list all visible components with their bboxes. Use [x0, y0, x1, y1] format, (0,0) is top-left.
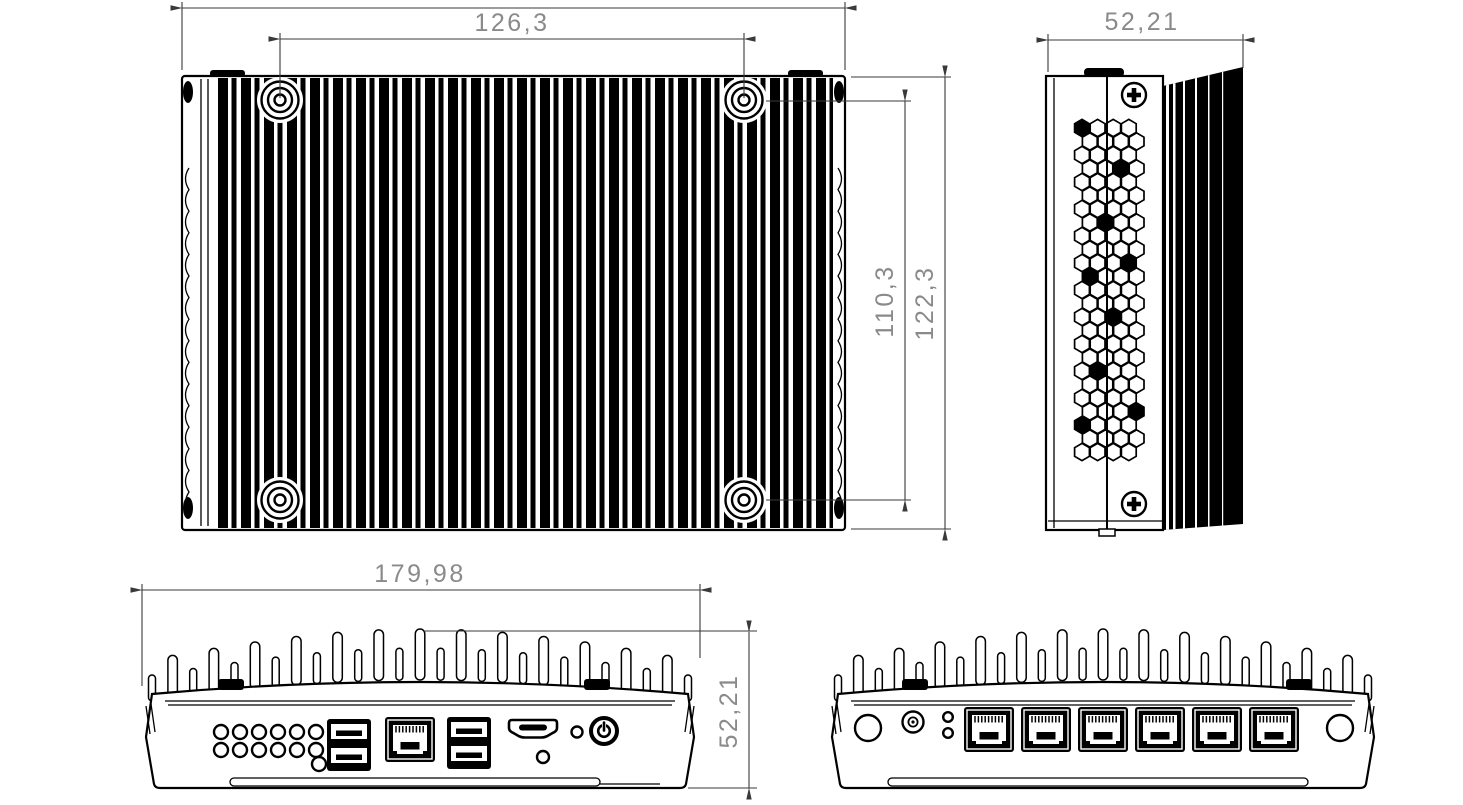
rear-tab-left [902, 679, 928, 690]
front-view [146, 629, 694, 788]
rear-tab-right [1286, 679, 1312, 690]
corner-slot-top-left [183, 81, 193, 103]
dim-front-width-label: 179,98 [374, 560, 465, 588]
phillips-screw-bottom [1122, 492, 1146, 516]
ethernet-port-4 [1135, 707, 1185, 752]
top-view [182, 70, 845, 530]
side-panel [1046, 76, 1163, 530]
ethernet-port-1 [964, 707, 1014, 752]
ethernet-port-3 [1078, 707, 1128, 752]
front-tab-left [218, 679, 244, 690]
technical-drawing-canvas: 126,3 110,3 122,3 52,21 179,98 52,21 [0, 0, 1463, 805]
screw-hole-bottom-right [721, 477, 767, 523]
ethernet-port-5 [1192, 707, 1242, 752]
ethernet-port-front [385, 717, 435, 762]
fanless-mini-pc-drawing: 126,3 110,3 122,3 52,21 179,98 52,21 [0, 0, 1463, 805]
dim-top-overall-height-label: 122,3 [911, 265, 939, 340]
led-indicator-rear-2 [943, 728, 953, 738]
front-tab-right [584, 679, 610, 690]
antenna-hole-right [1327, 715, 1353, 741]
hdmi-port [509, 720, 557, 738]
reset-hole [537, 751, 549, 763]
dim-top-screw-width-label: 126,3 [474, 9, 549, 37]
phillips-screw-top [1122, 83, 1146, 107]
dc-power-jack [903, 712, 924, 733]
dim-front-height-label: 52,21 [715, 673, 743, 748]
side-view [1046, 60, 1243, 540]
ethernet-port-2 [1021, 707, 1071, 752]
usb-stack-right [447, 717, 491, 769]
mounting-tab-right [788, 70, 823, 77]
ethernet-port-6 [1249, 707, 1299, 752]
power-button [591, 718, 617, 744]
corner-slot-top-right [834, 81, 844, 103]
dim-top-screw-height-label: 110,3 [871, 264, 899, 337]
led-indicator-rear-1 [943, 712, 953, 722]
screw-hole-bottom-left [257, 477, 303, 523]
rear-view [832, 629, 1374, 788]
corner-slot-bottom-left [183, 497, 193, 519]
antenna-hole-left [855, 715, 881, 741]
dim-side-depth-label: 52,21 [1104, 8, 1179, 36]
led-indicator-front [572, 727, 583, 738]
usb-stack-left [327, 719, 371, 771]
side-bottom-tab [1099, 529, 1115, 536]
mounting-tab-left [210, 70, 245, 77]
heatsink-fin-array [218, 78, 833, 528]
